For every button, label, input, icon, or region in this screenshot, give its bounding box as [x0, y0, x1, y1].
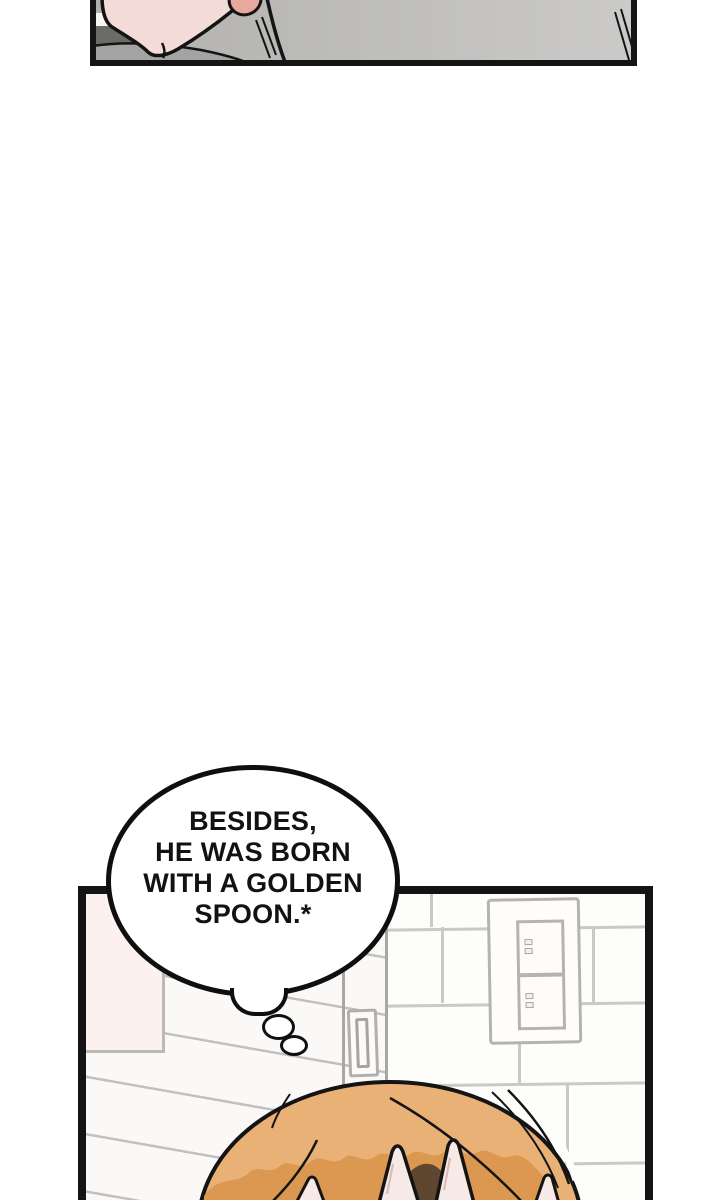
bubble-line: BESIDES, — [143, 806, 363, 837]
top-panel-art — [96, 0, 631, 60]
thought-trail-dot — [280, 1035, 308, 1056]
tile-grout-joint — [430, 894, 433, 927]
switch-indicator — [526, 1002, 534, 1008]
light-switch-rockers — [516, 919, 566, 1030]
switch-indicator — [524, 939, 532, 945]
bubble-line: SPOON.* — [143, 899, 363, 930]
top-comic-panel — [90, 0, 637, 66]
door-hinge-plate — [347, 1008, 379, 1077]
tile-grout-joint — [441, 927, 444, 1003]
bubble-line: HE WAS BORN — [143, 837, 363, 868]
light-switch-plate — [487, 897, 583, 1045]
switch-indicator — [525, 948, 533, 954]
door-hinge-inner — [355, 1018, 370, 1068]
switch-indicator — [525, 993, 533, 999]
character-head — [194, 1076, 594, 1200]
thought-bubble: BESIDES, HE WAS BORN WITH A GOLDEN SPOON… — [106, 765, 400, 997]
rocker-divider — [520, 973, 562, 977]
tile-grout-joint — [592, 927, 595, 1003]
webtoon-page: BESIDES, HE WAS BORN WITH A GOLDEN SPOON… — [0, 0, 720, 1200]
bubble-line: WITH A GOLDEN — [143, 868, 363, 899]
thought-bubble-text: BESIDES, HE WAS BORN WITH A GOLDEN SPOON… — [143, 806, 363, 930]
